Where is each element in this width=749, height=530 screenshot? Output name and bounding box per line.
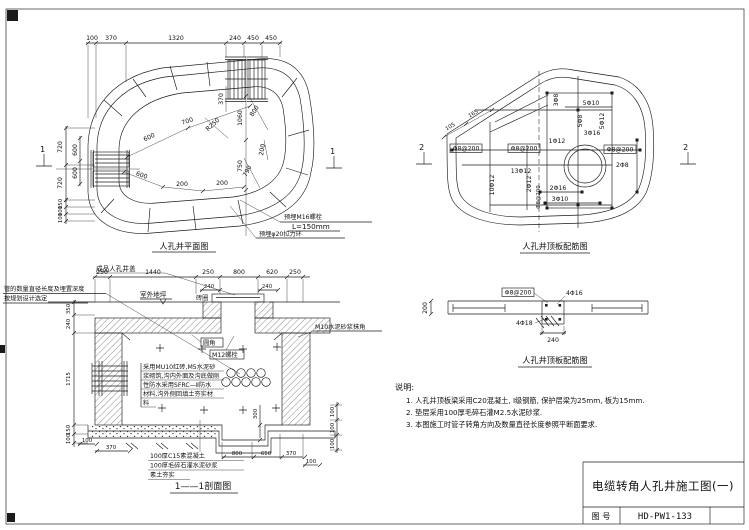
construction-drawing-sheet: 100 370 1320 240 450 450 720 720 600 600… [0,0,749,530]
section-caption: 1——1剖面图 [175,480,231,492]
dim-label: 200 [258,143,267,156]
wall-note: 采用MU10红砖,M5水泥砂 浆砌筑,沟内外面及沟底做刚 性防水采用SFRC—Ⅱ… [141,363,224,407]
dim-label: 1320 [168,35,184,42]
dim-label: 1715 [66,372,72,386]
rebar-label: 3Φ10 [552,196,569,203]
dim-label: 350 [66,303,72,314]
brick-ring [255,302,273,318]
drawing-no-label: 图 号 [592,511,611,521]
ground-label: 室外地坪 [140,290,167,299]
dim-label: 370 [218,93,225,105]
section-marker-label: 2 [683,142,688,152]
dim-label: 100 [82,438,93,444]
wall-note-line: 性防水采用SFRC—Ⅱ防水 [143,381,212,389]
section-marker-2-right: 2 [680,142,696,164]
rebar-label: 5Φ12 [599,113,606,130]
dim-label: 370 [105,35,117,42]
stirrup-label: Φ8@200 [505,289,532,297]
rebar-label: 13Φ12 [511,168,532,175]
title-block: 电缆转角人孔井施工图(一) 图 号 HD-PW1-133 [583,462,744,524]
plan-caption: 人孔井平面图 [159,241,208,251]
fillet-label: 圆角 [203,339,215,347]
pulling-ring-label: 预埋φ20拉力环 [259,230,302,238]
embedded-bolt-label: 预埋M16螺栓 [284,213,322,221]
dim-label: 240 [66,318,72,329]
dim-label: 600 [143,132,157,143]
dim-label: 620 [266,269,278,276]
note-item: 3. 本图施工时管子转角方向及数量直径长度参照平断面要求. [406,420,597,429]
section-view: 室外地坪 砖圈 成品人孔井盖 [3,264,382,493]
dim-label: 600 [135,170,149,181]
dim-label: 165 [468,109,480,119]
wall-note-line: 材料,沟外侧回填土夯实材 [143,390,213,398]
bottom-note-line: 100厚毛碎石灌水泥砂浆 [150,462,218,470]
plaster-label: M10水泥砂浆抹角 [315,323,365,331]
notes-block: 说明: 1. 人孔井顶板梁采用C20混凝土, Ⅰ级钢筋, 保护层梁为25mm, … [395,382,645,429]
dim-label: 105 [445,122,457,132]
dim-label: 450 [265,35,277,42]
section-marker-label: 2 [419,142,424,152]
dim-label: 200 [176,181,188,188]
dim-label: 100 [330,422,336,433]
rebar-label: 5Φ10 [583,100,600,107]
rebar-label: 5Φ8 [577,115,584,128]
plan-callouts: 预埋M16螺栓 L=150mm 预埋φ20拉力环 [230,200,372,238]
manhole-cover [203,294,273,318]
dim-label: 650 [261,451,272,457]
dim-label: 600 [72,144,79,156]
section-marker-1-left: 1 [36,144,52,166]
dim-label: 1440 [145,269,161,276]
top-slab-left [95,318,221,333]
dim-label: 720 [57,177,64,189]
section-marker-2-left: 2 [416,142,432,164]
note-item: 2. 垫层采用100厚毛碎石灌M2.5水泥砂浆. [406,408,542,417]
beam-detail: Φ8@200 4Φ16 4Φ18 240 200 人孔井顶板配筋图 [422,288,648,367]
drawing-title: 电缆转角人孔井施工图(一) [592,479,734,493]
dim-label: 700 [181,116,195,126]
section-marker-label: 1 [330,146,335,156]
dim-label: 250 [96,269,108,276]
notes-heading: 说明: [395,382,414,392]
dim-label: 800 [232,451,243,457]
slab-reinforcement-plan: 105 165 Φ8@200 Φ8@200 1Φ12 Φ8@200 2Φ8 13… [416,69,696,253]
wall-note-line: 料 [143,399,149,407]
section-marker-1-right: 1 [326,146,342,168]
wall-note-line: 浆砌筑,沟内外面及沟底做刚 [143,372,219,380]
section-left-dims: 350 240 1715 150 100 [66,300,95,447]
dim-label: 100 [86,35,98,42]
beam-width-dim: 240 [547,337,559,344]
beam-caption: 人孔井顶板配筋图 [522,355,588,365]
rebar-label: Φ8@200 [511,145,538,153]
dim-label: 240 [262,284,273,290]
pipe-note-line2: 按规划设计选定 [4,295,47,303]
corner-mark [7,513,15,522]
rebar-label: 1Φ12 [549,138,566,145]
plan-view: 100 370 1320 240 450 450 720 720 600 600… [36,35,372,252]
duct-bundle [222,369,271,387]
beam-height-dim: 200 [422,302,429,314]
manhole-opening [564,145,606,187]
section-marker-label: 1 [40,144,45,154]
dim-label: 200 [216,180,228,187]
corner-mark [7,10,18,21]
ground-symbol [140,299,172,304]
bottom-note-line: 素土夯实 [150,471,175,479]
rebar-label: 2Φ12 [526,176,533,193]
top-duct-bank [225,57,268,102]
corner-chamfers [122,333,282,340]
rebar-labels: Φ8@200 Φ8@200 1Φ12 Φ8@200 2Φ8 13Φ12 10Φ1… [450,94,636,209]
wall-note-line: 采用MU10红砖,M5水泥砂 [143,363,215,371]
dim-label: 600 [72,167,79,179]
dim-label: 240 [229,35,241,42]
rebar-label: 10Φ12 [489,175,496,196]
slab-slant-dims: 105 165 [442,108,494,139]
plan-outer-wall [88,59,314,234]
dim-label: 100 [330,406,336,417]
dim-label: 800 [249,104,261,118]
dim-label: 100 [330,438,336,449]
plan-left-dim-chain: 720 720 600 600 150 100 100 [57,126,95,224]
pipe-note-line1: 管的数量直径长度及埋置深度 [4,285,84,293]
rebar-label: Φ8@200 [536,185,542,209]
dim-label: 240 [204,284,215,290]
dim-label: 450 [247,35,259,42]
top-bars-label: 4Φ16 [566,290,583,297]
beam-hatch [536,316,559,328]
brick-ring [203,302,221,318]
dim-label: 100 [58,212,64,223]
rebar-label: Φ8@200 [453,145,480,153]
bottom-note-line: 100厚C15素混凝土 [150,452,205,460]
dim-label: 1060 [237,110,244,126]
fillet-callout: 圆角 [192,335,223,347]
rebar-label: 3Φ8 [553,94,560,107]
dim-label: 800 [233,269,245,276]
brick-ring-label: 砖圈 [196,294,208,302]
rebar-label: 2Φ16 [550,185,567,192]
rebar-label: 3Φ16 [584,130,601,137]
dim-label: 250 [289,269,301,276]
dim-label: 370 [286,451,297,457]
dim-label: 250 [202,269,214,276]
rebar-label: 2Φ8 [616,162,629,169]
note-item: 1. 人孔井顶板梁采用C20混凝土, Ⅰ级钢筋, 保护层梁为25mm, 板为15… [406,396,645,405]
dim-label: 370 [106,445,117,451]
sump-depth-dim: 300 [253,408,259,419]
masonry-joints [101,62,309,232]
floor-and-bedding [88,425,335,453]
dim-label: 100 [66,433,72,444]
dim-label: 750 [237,160,244,172]
bolt-length-label: L=150mm [292,222,330,231]
edge-mark [0,345,5,353]
dim-label: R250 [205,117,222,133]
plan-top-dim-chain: 100 370 1320 240 450 450 [86,35,282,118]
dim-label: 150 [66,424,72,435]
drawing-no-value: HD-PW1-133 [638,512,692,522]
bottom-bars-label: 4Φ18 [516,320,533,327]
rebar-label: Φ8@200 [607,146,634,154]
right-wall [282,333,310,425]
slab-caption: 人孔井顶板配筋图 [522,241,588,251]
dim-label: 720 [57,141,64,153]
dim-label: 100 [306,459,317,465]
bolt-label: M12螺栓 [212,351,238,359]
